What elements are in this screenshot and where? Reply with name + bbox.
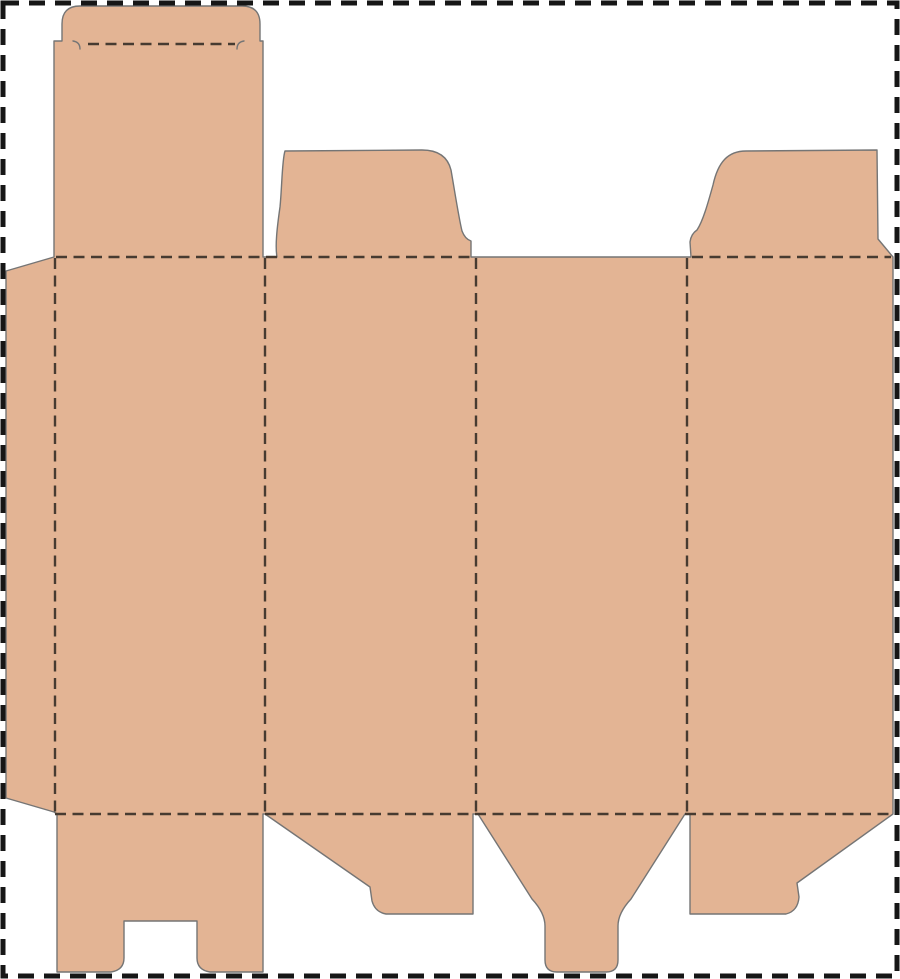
box-dieline-drawing	[0, 0, 900, 979]
dieline-canvas	[0, 0, 900, 979]
